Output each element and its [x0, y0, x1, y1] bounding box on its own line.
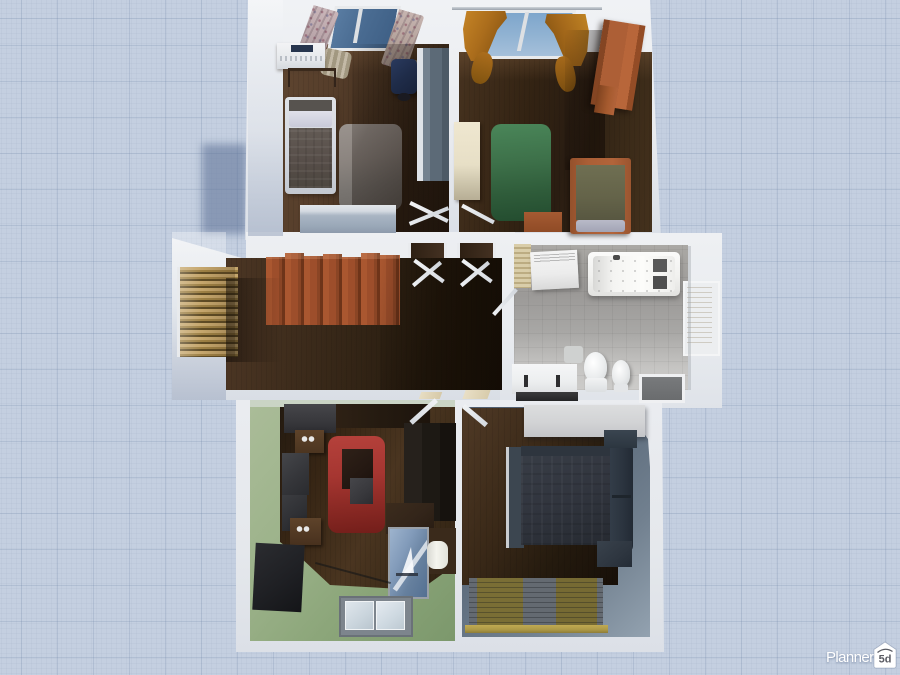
svg-text:5d: 5d: [879, 654, 892, 666]
